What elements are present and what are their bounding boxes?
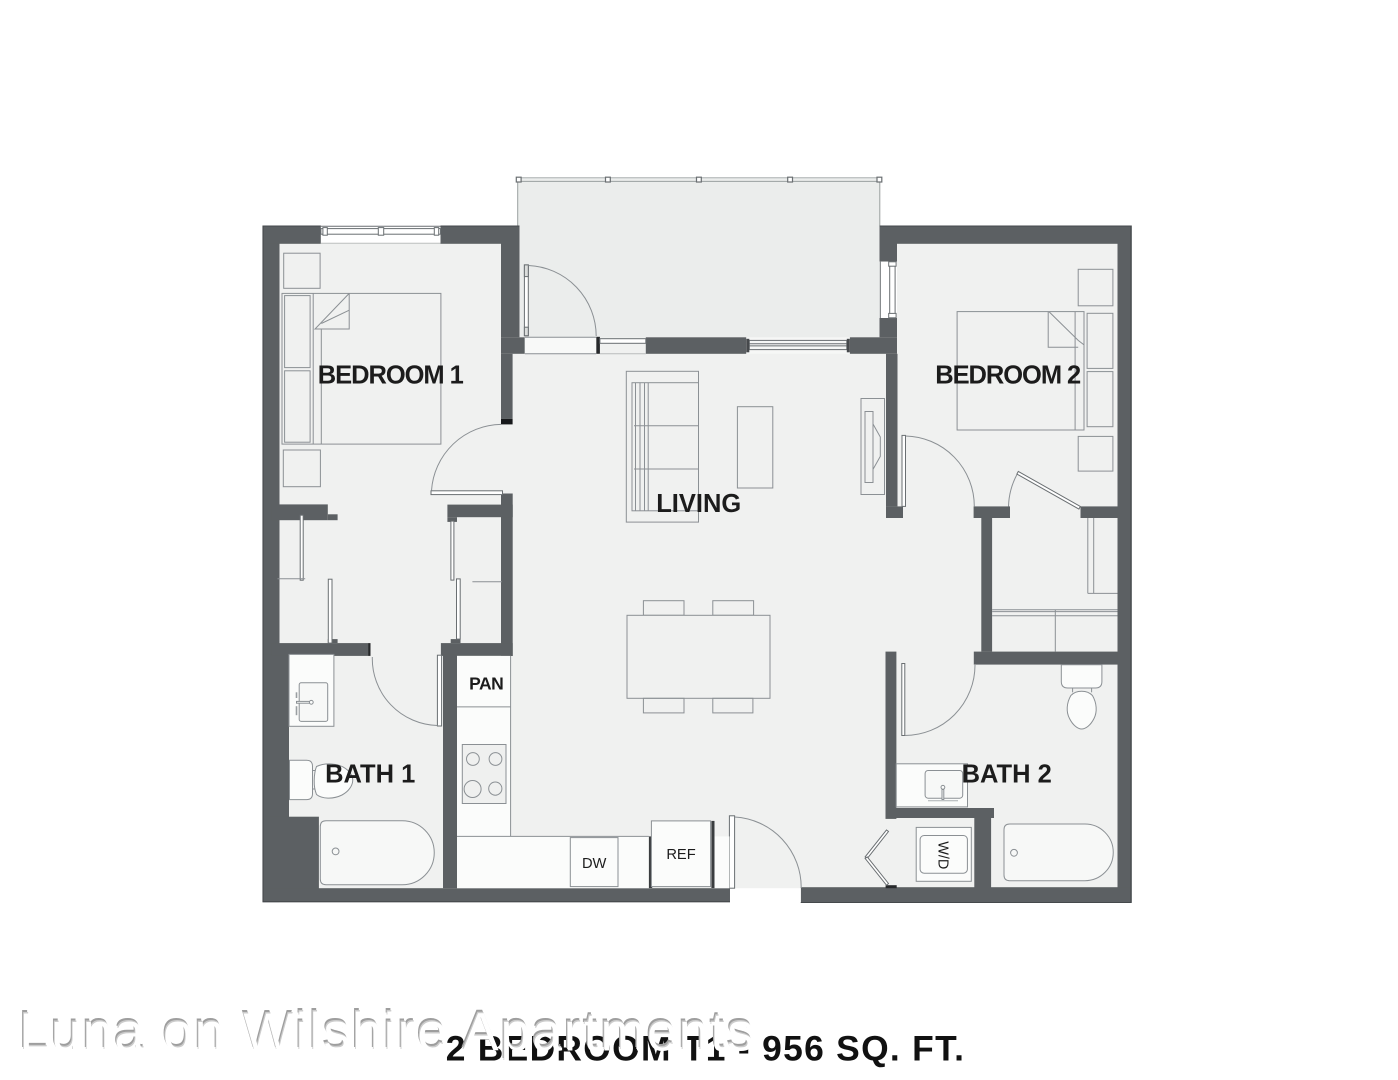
svg-text:W/D: W/D (935, 841, 951, 869)
svg-text:BEDROOM 1: BEDROOM 1 (318, 361, 464, 389)
svg-text:BEDROOM 2: BEDROOM 2 (935, 361, 1081, 389)
svg-text:Luna on Wilshire Apartments: Luna on Wilshire Apartments (20, 1004, 757, 1063)
svg-text:REF: REF (666, 847, 695, 863)
svg-text:DW: DW (582, 856, 607, 872)
svg-text:BATH 2: BATH 2 (962, 760, 1052, 788)
svg-text:LIVING: LIVING (656, 490, 741, 518)
svg-text:BATH 1: BATH 1 (325, 760, 415, 788)
svg-text:PAN: PAN (469, 673, 503, 693)
